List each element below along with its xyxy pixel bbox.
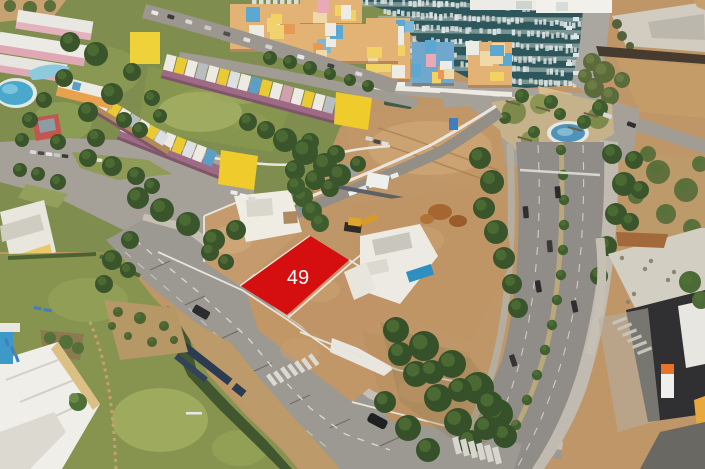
svg-text:49: 49 xyxy=(287,267,309,289)
